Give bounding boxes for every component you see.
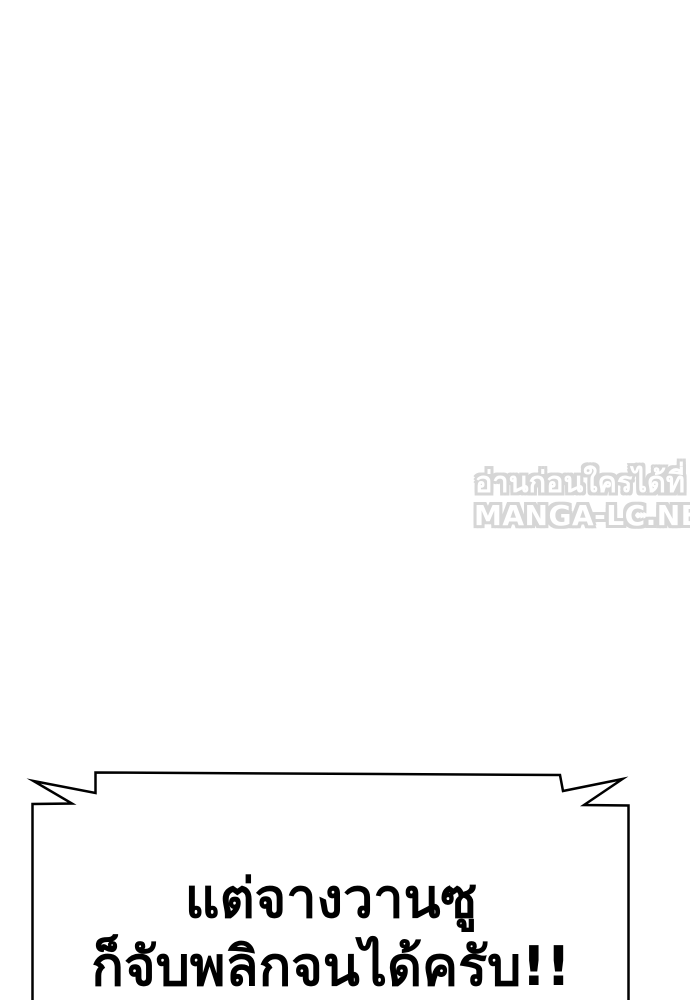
bubble-text: แต่จางวานซู ก็จับพลิกจนได้ครับ!! — [33, 866, 629, 1000]
watermark-thai-text: อ่านก่อนใครได้ที่ — [474, 463, 686, 501]
dialogue-line-2: ก็จับพลิกจนได้ครับ!! — [33, 932, 629, 1000]
comic-page: อ่านก่อนใครได้ที่ MANGA-LC.NET แต่จางวาน… — [0, 0, 690, 1000]
site-watermark: อ่านก่อนใครได้ที่ MANGA-LC.NET — [474, 463, 686, 531]
dialogue-line-1: แต่จางวานซู — [33, 866, 629, 932]
watermark-site-name: MANGA-LC.NET — [474, 501, 686, 531]
